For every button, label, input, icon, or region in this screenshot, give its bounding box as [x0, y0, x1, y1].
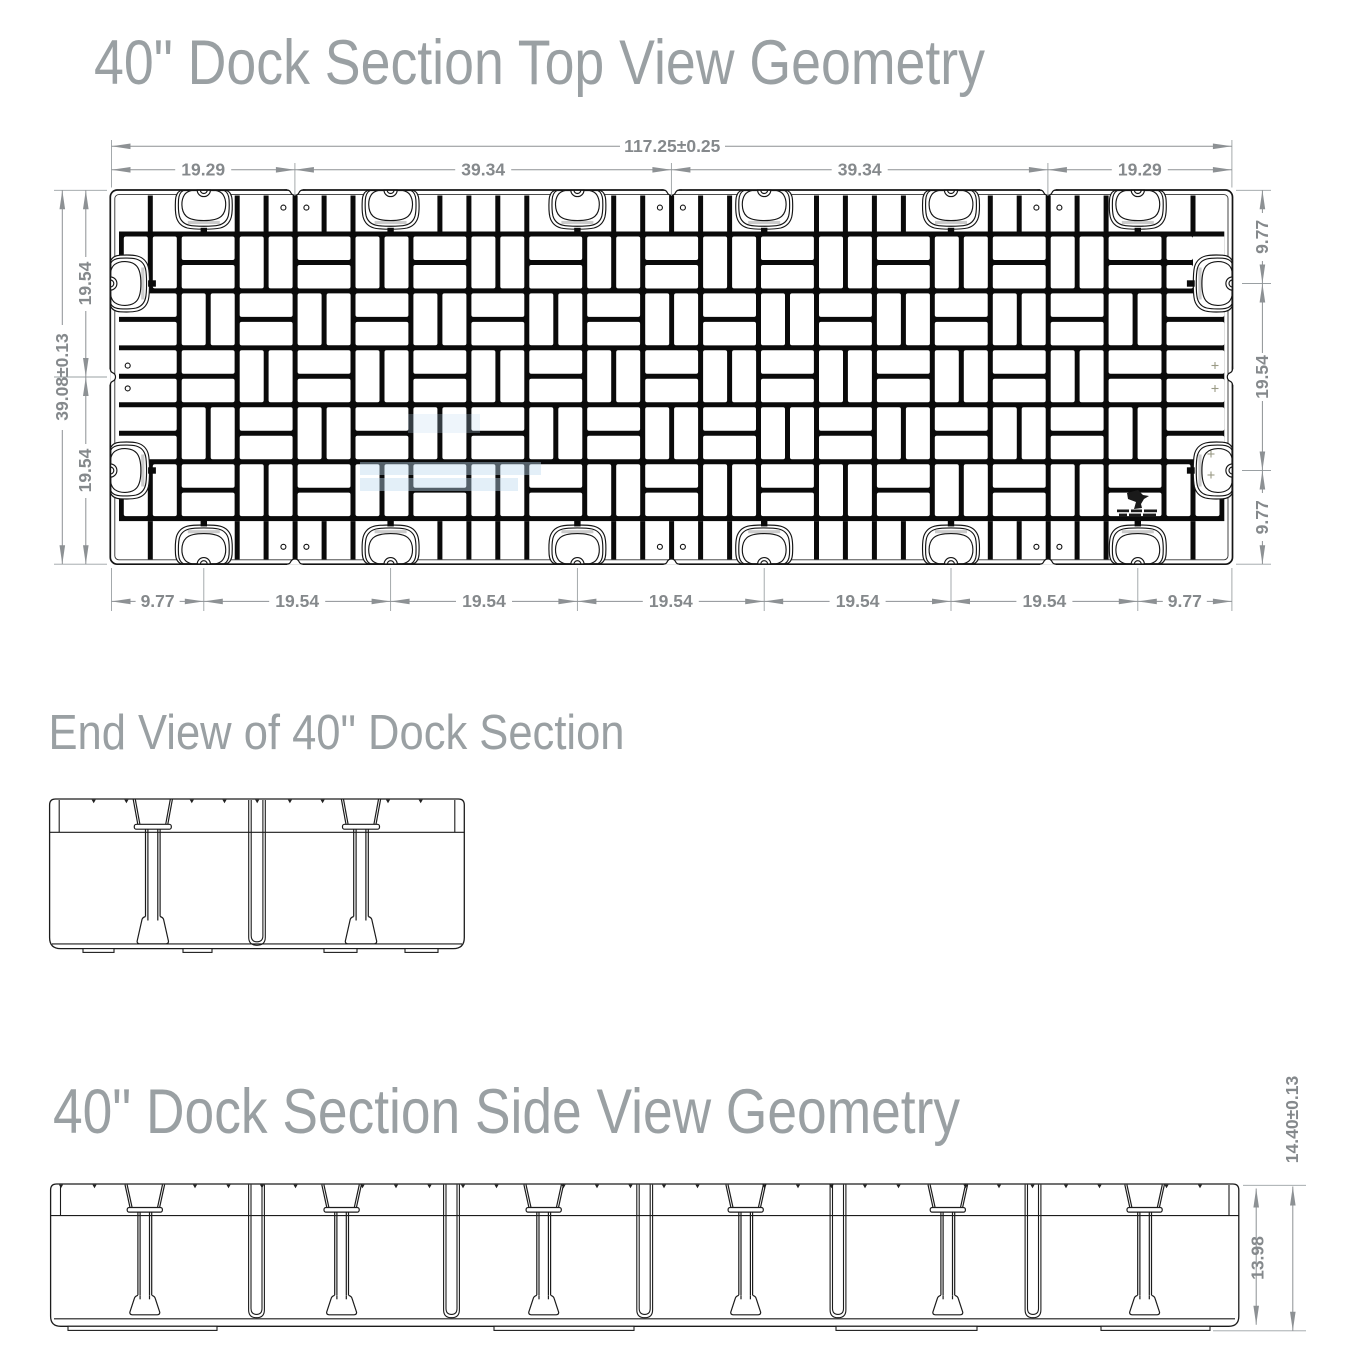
svg-text:19.54: 19.54 — [1252, 355, 1272, 399]
svg-text:19.54: 19.54 — [75, 261, 95, 305]
svg-text:14.40±0.13: 14.40±0.13 — [1282, 1076, 1302, 1164]
svg-text:13.98: 13.98 — [1248, 1236, 1268, 1280]
svg-text:19.54: 19.54 — [275, 591, 319, 611]
svg-text:117.25±0.25: 117.25±0.25 — [624, 136, 720, 156]
svg-text:40" Dock Section Top View Geom: 40" Dock Section Top View Geometry — [94, 28, 985, 98]
svg-text:9.77: 9.77 — [1168, 591, 1202, 611]
svg-text:39.34: 39.34 — [838, 159, 882, 179]
svg-text:9.77: 9.77 — [1252, 500, 1272, 534]
svg-text:9.77: 9.77 — [141, 591, 175, 611]
svg-text:19.54: 19.54 — [1023, 591, 1067, 611]
svg-text:19.29: 19.29 — [181, 159, 225, 179]
svg-text:40" Dock Section Side View Geo: 40" Dock Section Side View Geometry — [53, 1077, 960, 1147]
svg-text:End View of 40" Dock Section: End View of 40" Dock Section — [49, 706, 625, 760]
svg-text:9.77: 9.77 — [1252, 220, 1272, 254]
svg-text:39.34: 39.34 — [461, 159, 505, 179]
svg-text:19.54: 19.54 — [462, 591, 506, 611]
svg-text:19.54: 19.54 — [836, 591, 880, 611]
svg-text:19.54: 19.54 — [75, 448, 95, 492]
svg-text:19.54: 19.54 — [649, 591, 693, 611]
svg-text:39.08±0.13: 39.08±0.13 — [52, 333, 72, 421]
svg-text:19.29: 19.29 — [1118, 159, 1162, 179]
